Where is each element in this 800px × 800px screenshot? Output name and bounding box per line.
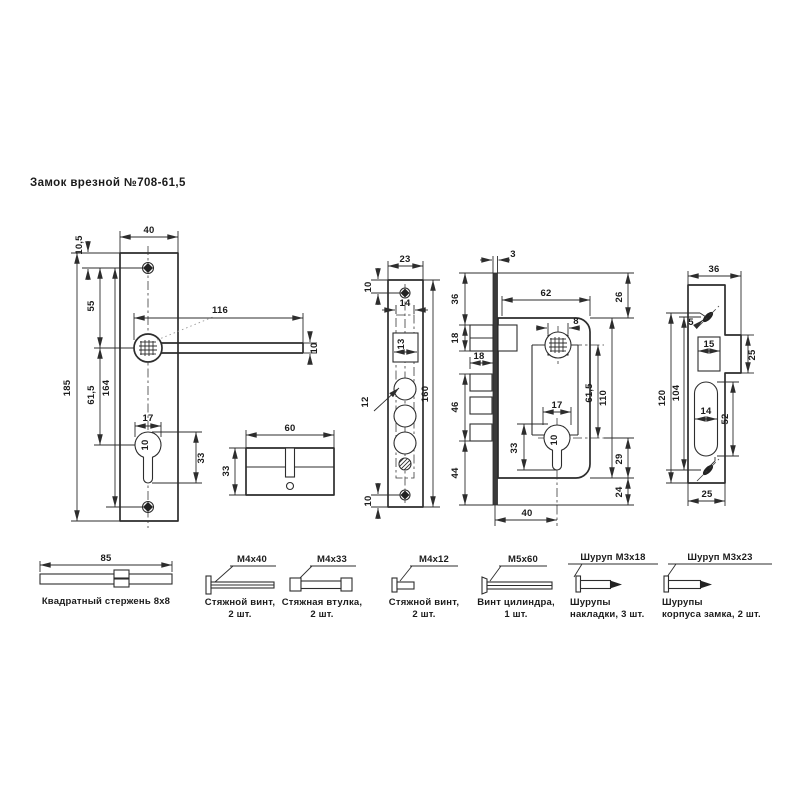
part2-label: М4х40 xyxy=(237,554,267,565)
dim-plate-height: 185 xyxy=(62,379,73,396)
part7-label: Шуруп М3х23 xyxy=(687,552,752,563)
dim-handle-length: 116 xyxy=(212,305,228,316)
dim-faceplate-height: 160 xyxy=(420,386,431,402)
view-strike-plate: 36 5 15 25 14 52 120 104 25 xyxy=(657,264,758,506)
dim-hole-to-handle: 55 xyxy=(86,300,97,311)
screw6-head xyxy=(576,576,581,592)
dim-faceplate-inner-width: 14 xyxy=(400,298,411,309)
view-faceplate-front: 23 10 10 14 13 12 160 xyxy=(360,254,440,519)
dim-strike-hole-spacing: 104 xyxy=(671,384,682,401)
part-cylinder-screw: М5х60 Винт цилиндра, 1 шт. xyxy=(477,554,555,620)
dim-strike-latch-hole: 15 xyxy=(704,339,715,350)
dim-faceplate-width: 23 xyxy=(400,254,411,265)
screw7-head xyxy=(664,576,669,592)
part1-caption: Квадратный стержень 8х8 xyxy=(42,596,170,607)
dim-strike-slot-width: 14 xyxy=(701,406,712,417)
screw6-tip xyxy=(610,581,622,589)
cylinder-key-channel xyxy=(286,448,295,477)
part-square-rod: 85 Квадратный стержень 8х8 xyxy=(40,553,172,607)
dim-side-latch-height: 18 xyxy=(450,333,461,344)
part-tie-sleeve: М4х33 Стяжная втулка, 2 шт. xyxy=(282,554,362,620)
dim-strike-width: 36 xyxy=(709,264,720,275)
dim-cylinder-height: 33 xyxy=(221,466,232,477)
dim-body-cyl-hole-dia: 10 xyxy=(549,435,560,446)
dim-strike-bottom-width: 25 xyxy=(702,489,713,500)
dim-cyl-slot-height: 33 xyxy=(196,453,207,464)
part-body-screws: Шуруп М3х23 Шурупы корпуса замка, 2 шт. xyxy=(662,552,772,620)
dim-cyl-hole-dia: 10 xyxy=(140,440,151,451)
dim-top-offset: 10,5 xyxy=(74,235,85,255)
dim-side-latch-depth: 18 xyxy=(474,351,485,362)
square-rod-joint-bottom xyxy=(114,579,129,587)
sleeve-collar-right xyxy=(341,578,352,591)
dim-body-cyl-slot-height: 33 xyxy=(509,443,520,454)
screw5-head xyxy=(482,577,487,594)
dim-faceplate-latch-size: 13 xyxy=(396,339,407,350)
square-rod-joint-top xyxy=(114,570,129,578)
lock-drawing-canvas: Замок врезной №708-61,5 xyxy=(0,0,800,800)
dim-body-height: 110 xyxy=(598,390,609,406)
part5-label: М5х60 xyxy=(508,554,538,565)
drawing-title: Замок врезной №708-61,5 xyxy=(30,177,186,189)
view-lock-body: 62 8 17 33 10 61,5 110 26 29 24 40 xyxy=(495,273,634,526)
dim-body-cyl-to-bottom: 29 xyxy=(614,454,625,465)
dim-strike-tab-height: 25 xyxy=(747,349,758,360)
part4-label: М4х12 xyxy=(419,554,449,565)
dim-strike-slot-height: 52 xyxy=(720,414,731,425)
dim-handle-width: 10 xyxy=(309,343,320,354)
faceplate-edge-bar xyxy=(493,273,498,505)
dim-body-depth: 62 xyxy=(541,288,552,299)
dim-cylinder-length: 60 xyxy=(285,423,296,434)
technical-drawing-page: Замок врезной №708-61,5 xyxy=(0,0,800,800)
part7-caption2: корпуса замка, 2 шт. xyxy=(662,609,761,620)
dim-side-top-margin: 36 xyxy=(450,294,461,305)
dim-body-bottom-margin: 24 xyxy=(614,486,625,497)
faceplate-cyl-screw-hole xyxy=(399,458,411,470)
screw2-head xyxy=(206,576,211,594)
part5-caption2: 1 шт. xyxy=(504,609,527,620)
dim-side-bolt-height: 46 xyxy=(450,402,461,413)
dim-body-backset: 40 xyxy=(522,508,533,519)
part6-label: Шуруп М3х18 xyxy=(580,552,645,563)
dim-faceplate-top-hole-offset: 10 xyxy=(363,282,374,293)
dim-faceplate-bottom-hole-offset: 10 xyxy=(363,496,374,507)
sleeve-tube xyxy=(301,581,341,589)
cylinder-cam-hole xyxy=(287,483,294,490)
part6-caption2: накладки, 3 шт. xyxy=(570,609,644,620)
part5-caption1: Винт цилиндра, xyxy=(477,597,555,608)
part-plate-screws: Шуруп М3х18 Шурупы накладки, 3 шт. xyxy=(568,552,658,620)
parts-row: 85 Квадратный стержень 8х8 М4х40 Стяжной… xyxy=(40,552,772,620)
dim-strike-height: 120 xyxy=(657,390,668,406)
dim-body-cyl-width: 17 xyxy=(552,400,563,411)
screw7-shaft xyxy=(669,581,701,589)
dim-side-thickness: 3 xyxy=(510,249,515,260)
part4-caption1: Стяжной винт, xyxy=(389,597,459,608)
part3-caption1: Стяжная втулка, xyxy=(282,597,362,608)
dim-faceplate-bolt-dia: 12 xyxy=(360,397,371,408)
screw6-shaft xyxy=(581,581,611,589)
part7-caption1: Шурупы xyxy=(662,597,703,608)
faceplate-bolt-circle-3 xyxy=(394,432,416,454)
part2-caption2: 2 шт. xyxy=(228,609,251,620)
part-tie-screw-short: М4х12 Стяжной винт, 2 шт. xyxy=(389,554,459,620)
dim-cyl-width: 17 xyxy=(143,413,154,424)
handle-bar xyxy=(161,343,303,353)
view-cylinder: 60 33 xyxy=(221,423,334,495)
sleeve-collar-left xyxy=(290,578,301,591)
part3-label: М4х33 xyxy=(317,554,347,565)
dim-body-spindle-to-cyl: 61,5 xyxy=(584,383,595,403)
screw7-tip xyxy=(700,581,712,589)
dim-hole-spacing: 164 xyxy=(101,379,112,396)
bolt-protrusion-bars xyxy=(470,374,492,441)
latch-protrusion xyxy=(470,325,493,351)
part1-dim: 85 xyxy=(101,553,112,564)
square-rod-body xyxy=(40,574,172,584)
screw4-shaft xyxy=(397,582,414,589)
dim-strike-hole-dia: 5 xyxy=(688,317,694,328)
part3-caption2: 2 шт. xyxy=(310,609,333,620)
part4-caption2: 2 шт. xyxy=(412,609,435,620)
handle-boss xyxy=(134,334,162,362)
spindle-hub-circle xyxy=(545,332,571,358)
part-tie-screw-long: М4х40 Стяжной винт, 2 шт. xyxy=(205,554,276,620)
faceplate-bolt-circle-2 xyxy=(394,405,416,427)
dim-body-spindle: 8 xyxy=(573,316,578,327)
lock-body-latch-block xyxy=(498,325,517,351)
screw4-head xyxy=(392,578,397,592)
dim-plate-width: 40 xyxy=(144,225,155,236)
part2-caption1: Стяжной винт, xyxy=(205,597,275,608)
dim-side-bottom-margin: 44 xyxy=(450,467,461,478)
dim-handle-to-cyl: 61,5 xyxy=(86,385,97,405)
dim-body-top-margin: 26 xyxy=(614,292,625,303)
part6-caption1: Шурупы xyxy=(570,597,611,608)
